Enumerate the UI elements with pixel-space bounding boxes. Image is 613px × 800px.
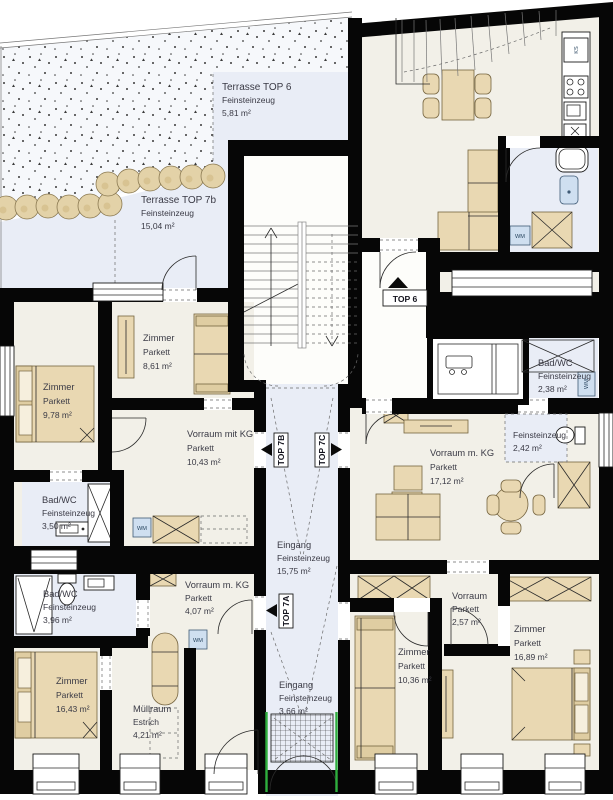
svg-text:Estrich: Estrich [133,717,159,727]
svg-text:Müllraum: Müllraum [133,704,171,714]
svg-text:Feinsteinzeug: Feinsteinzeug [279,693,332,703]
wm-label: WM [137,526,147,532]
svg-text:Parkett: Parkett [143,347,171,357]
window [33,754,79,794]
svg-text:Zimmer: Zimmer [143,333,175,343]
wall-corridor-right3 [338,560,350,602]
svg-text:15,75 m²: 15,75 m² [277,566,311,576]
stairwell-floor [244,156,348,396]
svg-text:10,43 m²: 10,43 m² [187,457,221,467]
shelf-icon [118,316,134,378]
svg-text:3,66 m²: 3,66 m² [279,706,308,716]
window [31,550,77,570]
wall-stub-left [228,380,266,392]
svg-text:8,61 m²: 8,61 m² [143,361,172,371]
wm-label: WM [515,234,525,240]
svg-text:Bad/WC: Bad/WC [42,495,77,505]
svg-text:Feinsteinzeug: Feinsteinzeug [42,508,95,518]
svg-text:Parkett: Parkett [398,661,426,671]
wall-stub-right [338,384,362,396]
wall-vorraum-top-a [112,398,204,410]
wall-corridor-right1 [338,392,350,432]
top7a-marker-label: TOP 7A [281,596,291,627]
svg-text:Terrasse TOP 6: Terrasse TOP 6 [222,82,292,93]
sofa-861-icon [194,314,230,394]
wall-vorraum-top-b [232,398,254,410]
wall-corridor-left4 [254,630,266,775]
wall-corridor-right2 [338,468,350,560]
window [375,754,417,794]
svg-text:Vorraum m. KG: Vorraum m. KG [430,448,494,458]
svg-text:Bad/WC: Bad/WC [43,589,78,599]
wall-right [599,10,613,413]
ks-label: KS [574,46,580,54]
window [461,754,503,794]
svg-text:16,89 m²: 16,89 m² [514,652,548,662]
window [205,754,247,794]
wardrobe-icon [150,572,176,586]
svg-text:Parkett: Parkett [452,604,480,614]
svg-text:3,50 m²: 3,50 m² [42,521,71,531]
svg-text:17,12 m²: 17,12 m² [430,476,464,486]
svg-text:Parkett: Parkett [430,462,458,472]
wall-1036-right [428,598,442,775]
room-label-zimmer-861: Zimmer Parkett 8,61 m² [143,333,175,371]
wm-label: WM [584,379,590,389]
wardrobe-icon [153,516,199,543]
wall-corridor-left1 [254,392,266,432]
wardrobe-icon [558,462,590,508]
sideboard-icon [404,420,468,433]
svg-text:Vorraum mit KG: Vorraum mit KG [187,429,253,439]
svg-text:Feinsteinzeug: Feinsteinzeug [222,95,275,105]
svg-text:15,04 m²: 15,04 m² [141,221,175,231]
floor-plan-drawing: TOP 6 TOP 7B TOP 7C TOP 7A Terrasse TOP … [0,0,613,800]
top6-marker-label: TOP 6 [393,294,418,304]
wm-label: WM [193,638,203,644]
window [120,754,160,794]
bathtub-icon [556,146,588,172]
room-label-zimmer-978: Zimmer Parkett 9,78 m² [43,382,75,420]
svg-text:Eingang: Eingang [277,540,311,550]
wardrobe-icon [532,212,572,248]
svg-text:Parkett: Parkett [43,396,71,406]
svg-text:Feinsteinzeug: Feinsteinzeug [141,208,194,218]
daybed-icon [355,616,395,760]
svg-text:3,96 m²: 3,96 m² [43,615,72,625]
wall-corridor-right4 [338,640,350,775]
svg-text:Parkett: Parkett [187,443,215,453]
floor-plan-page: TOP 6 TOP 7B TOP 7C TOP 7A Terrasse TOP … [0,0,613,800]
svg-text:Bad/WC: Bad/WC [538,358,573,368]
wall-stairwell-left [228,140,244,392]
wall-bath396-bottom [14,636,148,648]
svg-text:5,81 m²: 5,81 m² [222,108,251,118]
elevator [430,336,526,402]
window [93,283,163,301]
svg-text:Vorraum: Vorraum [452,591,487,601]
top7b-marker-label: TOP 7B [276,435,286,466]
svg-text:Feinsteinzeug: Feinsteinzeug [277,553,330,563]
svg-text:Zimmer: Zimmer [56,676,88,686]
svg-text:10,36 m²: 10,36 m² [398,675,432,685]
lift-hall-floor [362,252,428,402]
svg-text:Terrasse TOP 7b: Terrasse TOP 7b [141,195,216,206]
wall-stairwell-top [228,140,362,156]
svg-text:2,38 m²: 2,38 m² [538,384,567,394]
svg-text:2,57 m²: 2,57 m² [452,617,481,627]
svg-text:4,07 m²: 4,07 m² [185,606,214,616]
svg-text:Parkett: Parkett [185,593,213,603]
svg-text:2,42 m²: 2,42 m² [513,443,542,453]
wall-muell-right [184,648,196,775]
sink-396-icon [84,576,114,590]
wall-bath350-right [110,470,124,546]
top7c-marker-label: TOP 7C [317,435,327,466]
sofa-1712-icon [376,494,440,540]
window [545,754,585,794]
wall-corridor-left2 [254,468,266,560]
svg-text:Parkett: Parkett [56,690,84,700]
wall-corridor-left3 [254,560,266,596]
window [0,346,14,416]
oval-table-icon [152,633,178,705]
svg-text:Zimmer: Zimmer [43,382,75,392]
svg-text:16,43 m²: 16,43 m² [56,704,90,714]
wall-stairwell-right [348,18,362,408]
svg-text:Feinsteinzeug: Feinsteinzeug [513,430,566,440]
svg-text:Feinsteinzeug: Feinsteinzeug [43,602,96,612]
window [599,413,613,467]
svg-text:4,21 m²: 4,21 m² [133,730,162,740]
svg-text:Zimmer: Zimmer [398,647,430,657]
wall-bottom [8,770,600,794]
wall-left-lower [0,416,14,794]
svg-text:9,78 m²: 9,78 m² [43,410,72,420]
wall-7b-vert [98,302,112,470]
washbasin-icon [560,176,578,204]
wall-band-mid-right [426,292,613,338]
window [452,270,592,296]
svg-text:Zimmer: Zimmer [514,624,546,634]
wall-right-lower [599,467,613,794]
wall-bath-top6-left [498,136,510,292]
svg-text:Parkett: Parkett [514,638,542,648]
side-table-icon [394,466,422,490]
svg-text:Eingang: Eingang [279,680,313,690]
wall-top6-bottom [426,252,613,272]
svg-text:Vorraum m. KG: Vorraum m. KG [185,580,249,590]
